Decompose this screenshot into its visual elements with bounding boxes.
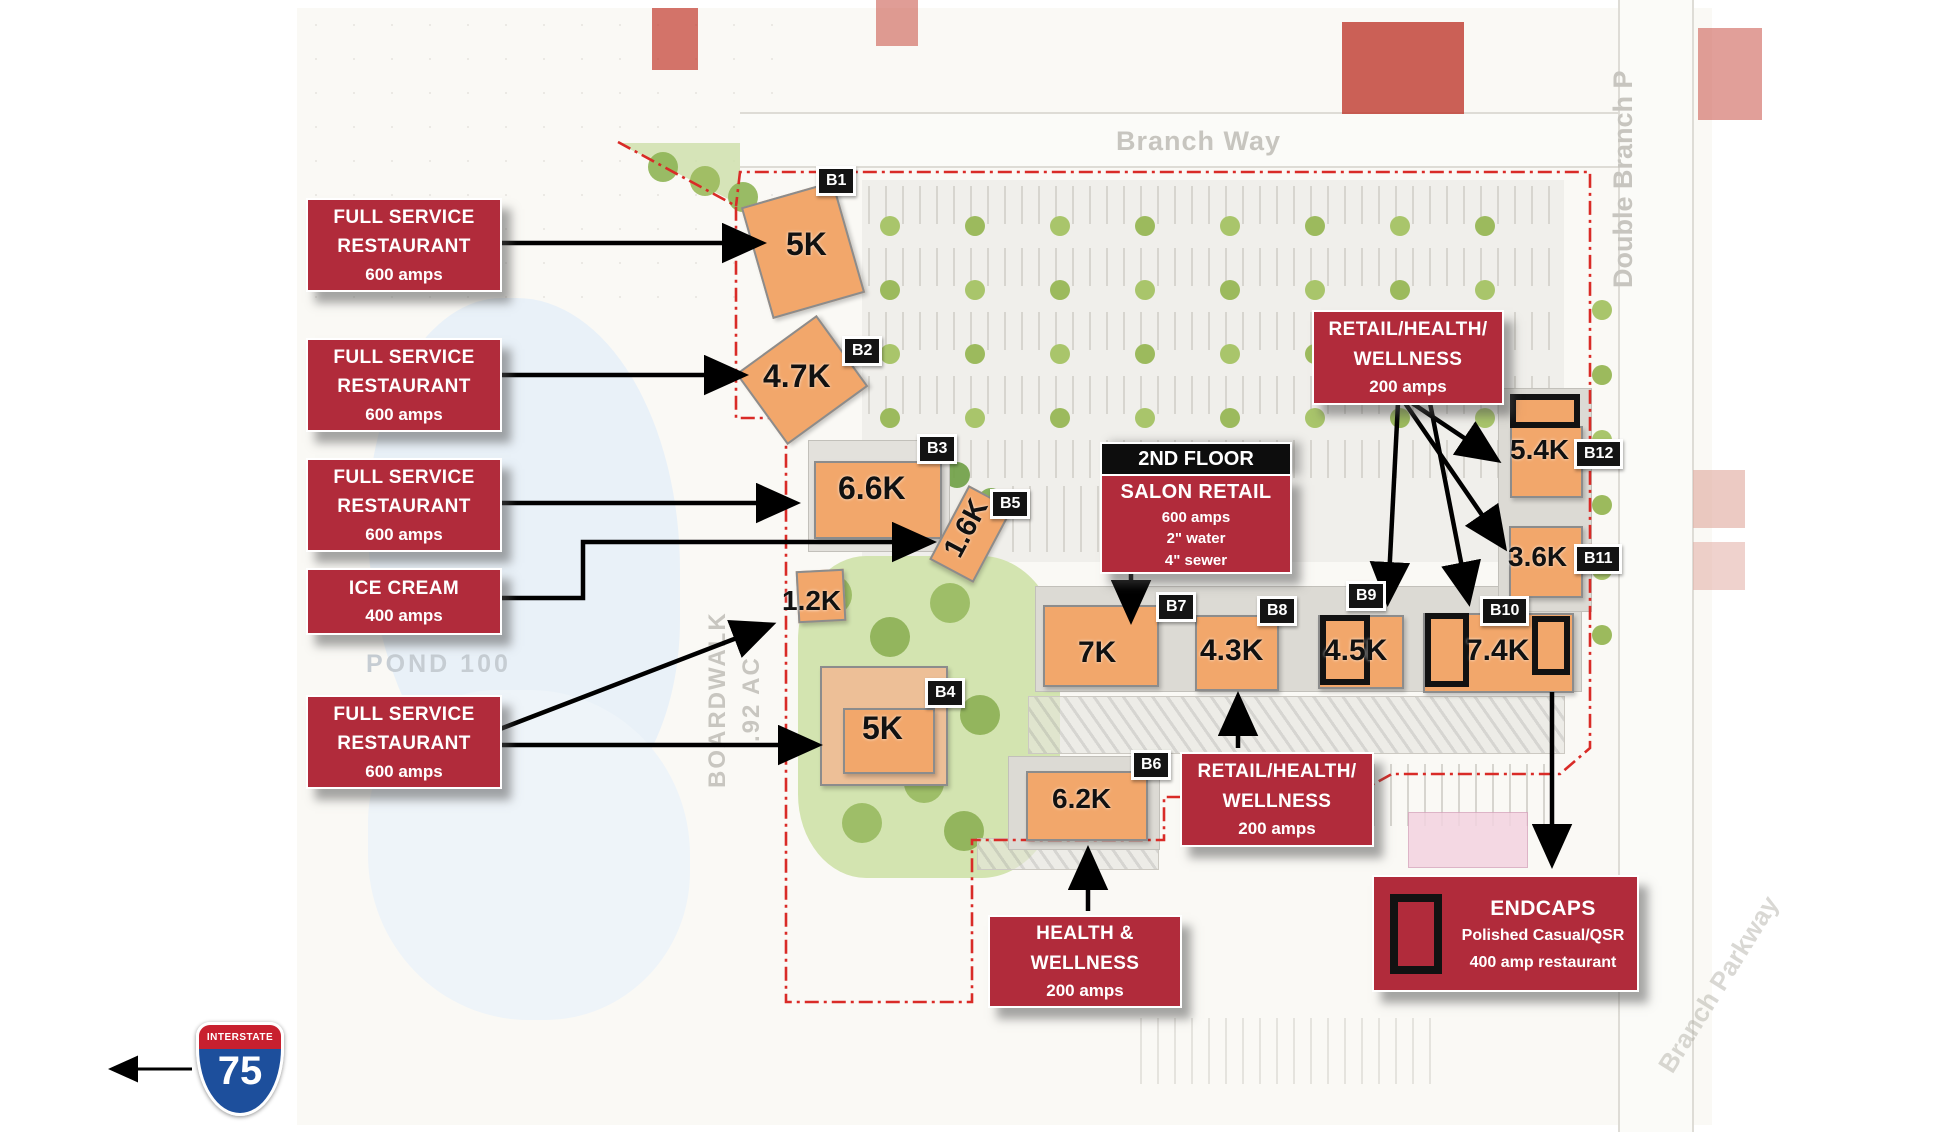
size-label-b3: 6.6K bbox=[838, 470, 906, 507]
boardwalk-label: BOARDWALK bbox=[704, 611, 732, 788]
size-label-b11: 3.6K bbox=[1508, 541, 1567, 573]
callout-full-service-restaurant-4: FULL SERVICE RESTAURANT 600 amps bbox=[306, 695, 502, 789]
callout-sub: 600 amps bbox=[308, 403, 500, 427]
callout-full-service-restaurant-1: FULL SERVICE RESTAURANT 600 amps bbox=[306, 198, 502, 292]
size-label-b2: 4.7K bbox=[763, 358, 831, 395]
callout-full-service-restaurant-3: FULL SERVICE RESTAURANT 600 amps bbox=[306, 458, 502, 552]
badge-b8: B8 bbox=[1257, 596, 1297, 626]
badge-b5: B5 bbox=[990, 489, 1030, 519]
endcap-legend-icon bbox=[1390, 894, 1442, 974]
callout-health-wellness: HEALTH & WELLNESS 200 amps bbox=[988, 915, 1182, 1008]
callout-line: WELLNESS bbox=[1314, 346, 1502, 375]
context-building bbox=[1698, 28, 1762, 120]
size-label-b1: 5K bbox=[786, 226, 827, 263]
badge-b1: B1 bbox=[816, 166, 856, 196]
callout-line: RESTAURANT bbox=[308, 730, 500, 759]
size-label-b10: 7.4K bbox=[1466, 634, 1529, 668]
callout-sub: 400 amp restaurant bbox=[1457, 952, 1629, 974]
callout-line: ENDCAPS bbox=[1457, 893, 1629, 925]
badge-b10: B10 bbox=[1480, 596, 1529, 626]
size-label-b7: 7K bbox=[1078, 636, 1116, 670]
badge-b9: B9 bbox=[1346, 581, 1386, 611]
callout-endcaps: ENDCAPS Polished Casual/QSR 400 amp rest… bbox=[1372, 875, 1639, 992]
tree-cluster bbox=[648, 152, 678, 182]
pond-label: POND 100 bbox=[366, 650, 511, 679]
callout-retail-health-wellness-bottom: RETAIL/HEALTH/ WELLNESS 200 amps bbox=[1180, 752, 1374, 847]
callout-sub: 400 amps bbox=[308, 604, 500, 628]
callout-retail-health-wellness-top: RETAIL/HEALTH/ WELLNESS 200 amps bbox=[1312, 310, 1504, 405]
context-building bbox=[876, 0, 918, 46]
callout-line: SALON RETAIL bbox=[1102, 477, 1290, 507]
tree-row bbox=[880, 344, 900, 364]
callout-sub: 600 amps bbox=[1102, 508, 1290, 528]
callout-sub: 4" sewer bbox=[1102, 551, 1290, 571]
callout-line: FULL SERVICE bbox=[308, 464, 500, 493]
parking-stalls bbox=[1140, 1018, 1440, 1084]
tree-row bbox=[880, 280, 900, 300]
acreage-label: .92 AC bbox=[738, 656, 766, 742]
badge-b4: B4 bbox=[925, 678, 965, 708]
callout-line: HEALTH & bbox=[990, 920, 1180, 949]
badge-b2: B2 bbox=[842, 336, 882, 366]
badge-b11: B11 bbox=[1574, 544, 1622, 574]
tree-row bbox=[880, 408, 900, 428]
callout-full-service-restaurant-2: FULL SERVICE RESTAURANT 600 amps bbox=[306, 338, 502, 432]
size-label-b9: 4.5K bbox=[1324, 634, 1387, 668]
endcap-outline-b10-left bbox=[1425, 613, 1469, 687]
parking-stalls bbox=[868, 248, 1558, 286]
endcap-outline-b10-right bbox=[1532, 616, 1570, 675]
interstate-number: 75 bbox=[199, 1049, 281, 1113]
context-building bbox=[1342, 22, 1464, 114]
callout-sub: 600 amps bbox=[308, 523, 500, 547]
callout-line: RESTAURANT bbox=[308, 493, 500, 522]
callout-line: FULL SERVICE bbox=[308, 344, 500, 373]
interstate-75-shield: INTERSTATE 75 bbox=[196, 1022, 284, 1116]
callout-line: RESTAURANT bbox=[308, 373, 500, 402]
tree-row bbox=[880, 216, 900, 236]
callout-sub: Polished Casual/QSR bbox=[1457, 925, 1629, 947]
context-building bbox=[1693, 470, 1745, 528]
endcap-outline-b12 bbox=[1510, 394, 1580, 428]
context-building bbox=[1408, 812, 1528, 868]
callout-line: WELLNESS bbox=[990, 950, 1180, 979]
interstate-label: INTERSTATE bbox=[199, 1025, 281, 1049]
callout-sub: 600 amps bbox=[308, 760, 500, 784]
callout-line: WELLNESS bbox=[1182, 788, 1372, 817]
size-label-b8: 4.3K bbox=[1200, 634, 1263, 668]
size-label-b12: 5.4K bbox=[1510, 434, 1569, 466]
callout-line: ICE CREAM bbox=[308, 575, 500, 604]
promenade-hatch bbox=[1028, 696, 1565, 754]
callout-sub: 600 amps bbox=[308, 263, 500, 287]
salon-second-floor-header: 2ND FLOOR bbox=[1100, 442, 1292, 476]
callout-line: RESTAURANT bbox=[308, 233, 500, 262]
callout-salon-retail: SALON RETAIL 600 amps 2" water 4" sewer bbox=[1100, 474, 1292, 574]
callout-sub: 200 amps bbox=[1182, 817, 1372, 841]
callout-sub: 200 amps bbox=[990, 979, 1180, 1003]
badge-b3: B3 bbox=[917, 434, 957, 464]
callout-line: RETAIL/HEALTH/ bbox=[1314, 316, 1502, 345]
badge-b6: B6 bbox=[1131, 750, 1171, 780]
street-label-double-branch: Double Branch P bbox=[1608, 70, 1639, 288]
callout-sub: 2" water bbox=[1102, 529, 1290, 549]
parking-stalls bbox=[868, 186, 1558, 224]
site-plan: Branch Way Double Branch P Branch Parkwa… bbox=[0, 0, 1940, 1132]
size-label-b6: 6.2K bbox=[1052, 783, 1111, 815]
badge-b7: B7 bbox=[1156, 592, 1196, 622]
callout-line: FULL SERVICE bbox=[308, 204, 500, 233]
callout-ice-cream: ICE CREAM 400 amps bbox=[306, 568, 502, 635]
callout-line: RETAIL/HEALTH/ bbox=[1182, 758, 1372, 787]
badge-b12: B12 bbox=[1574, 439, 1623, 469]
callout-line: FULL SERVICE bbox=[308, 701, 500, 730]
size-label-b4: 5K bbox=[862, 710, 903, 747]
context-building bbox=[1693, 542, 1745, 590]
callout-sub: 200 amps bbox=[1314, 375, 1502, 399]
size-label-1-2k: 1.2K bbox=[782, 585, 841, 617]
context-building bbox=[652, 8, 698, 70]
street-label-branch-way: Branch Way bbox=[1116, 126, 1281, 157]
tree-row bbox=[1592, 300, 1612, 320]
